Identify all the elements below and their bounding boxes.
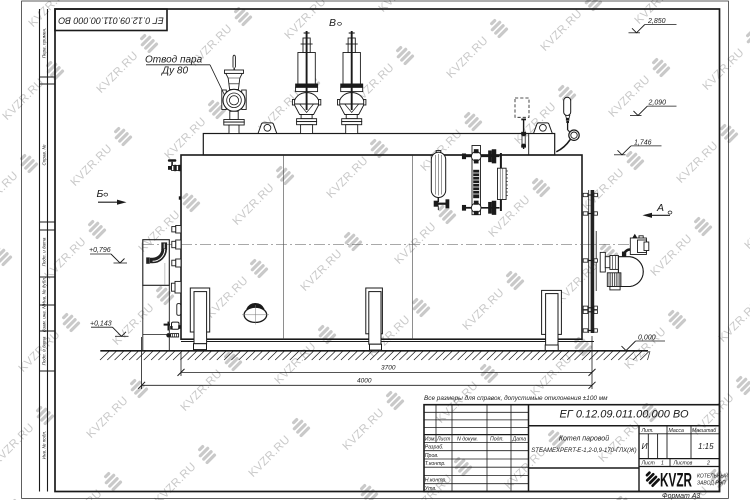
svg-text:4000: 4000 — [357, 377, 372, 384]
svg-text:Справ. №: Справ. № — [42, 145, 47, 166]
svg-text:Н.контр.: Н.контр. — [425, 478, 447, 484]
svg-text:ЕГ 0.12.09.011.00.000 ВО: ЕГ 0.12.09.011.00.000 ВО — [559, 409, 689, 421]
svg-text:Инв. № дубл.: Инв. № дубл. — [42, 277, 47, 305]
svg-text:N докум.: N докум. — [457, 436, 478, 442]
svg-text:Подп.: Подп. — [490, 436, 504, 442]
svg-text:ЕГ 0.12.09.011.00.000 ВО: ЕГ 0.12.09.011.00.000 ВО — [58, 16, 164, 26]
svg-text:Подп. и дата: Подп. и дата — [42, 237, 47, 266]
svg-text:1: 1 — [661, 461, 664, 467]
svg-text:Взам. инв. №: Взам. инв. № — [42, 304, 47, 332]
svg-text:Б: Б — [97, 188, 104, 200]
svg-text:Разраб.: Разраб. — [425, 445, 444, 451]
svg-text:STEAMEXPERT-Е-1,2-0,9-170-ГЛХ(: STEAMEXPERT-Е-1,2-0,9-170-ГЛХ(Ж) — [531, 448, 636, 454]
svg-text:Лист: Лист — [641, 461, 656, 467]
svg-text:Дата: Дата — [512, 436, 527, 442]
svg-text:2,850: 2,850 — [647, 18, 666, 25]
svg-text:1:15: 1:15 — [698, 442, 714, 451]
svg-text:Перв. примен.: Перв. примен. — [42, 28, 47, 59]
svg-text:Котел паровой: Котел паровой — [559, 435, 609, 443]
svg-text:+0,143: +0,143 — [90, 320, 112, 327]
svg-text:Пров.: Пров. — [425, 453, 439, 459]
svg-text:0,000: 0,000 — [638, 335, 656, 342]
svg-text:КОТЕЛЬНЫЙ: КОТЕЛЬНЫЙ — [697, 472, 729, 480]
svg-text:Все размеры для справок, допу: Все размеры для справок, допустимые откл… — [424, 394, 608, 402]
svg-text:Подп. и дата: Подп. и дата — [42, 336, 47, 365]
svg-text:Масштаб: Масштаб — [692, 428, 717, 434]
svg-text:2: 2 — [706, 461, 710, 467]
svg-text:Формат А3: Формат А3 — [662, 493, 700, 500]
svg-text:1,746: 1,746 — [634, 139, 652, 146]
svg-text:Отвод пара: Отвод пара — [145, 55, 203, 66]
svg-text:Листов: Листов — [673, 461, 693, 467]
svg-text:Ду 80: Ду 80 — [161, 66, 188, 77]
svg-text:В: В — [329, 17, 336, 29]
svg-text:И: И — [642, 441, 649, 451]
svg-text:3700: 3700 — [381, 364, 396, 371]
svg-text:2,090: 2,090 — [648, 100, 667, 107]
svg-text:Лист: Лист — [436, 436, 451, 442]
svg-text:Утв.: Утв. — [425, 486, 437, 492]
svg-text:KVZR: KVZR — [660, 471, 692, 492]
svg-text:Лит.: Лит. — [641, 428, 654, 434]
svg-text:+0,796: +0,796 — [89, 247, 111, 254]
svg-text:А: А — [656, 202, 664, 214]
svg-text:ЗАВОД РЭП: ЗАВОД РЭП — [697, 481, 726, 487]
svg-text:Масса: Масса — [669, 428, 684, 434]
svg-text:Инв. № подл.: Инв. № подл. — [42, 431, 47, 460]
svg-text:Т.контр.: Т.контр. — [425, 461, 446, 467]
svg-text:Изм.: Изм. — [425, 436, 436, 442]
